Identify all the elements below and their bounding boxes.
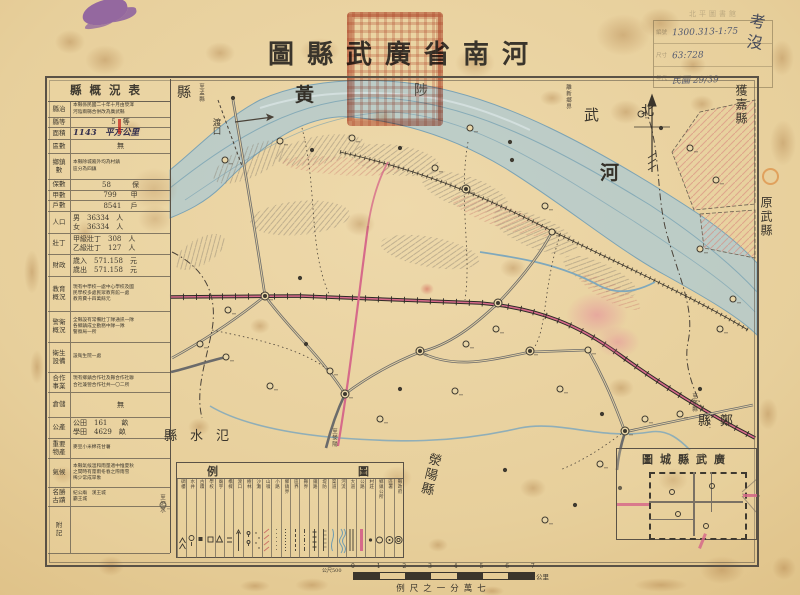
legend-item-label: 縣政府 bbox=[397, 479, 402, 523]
stat-row-value: 本縣係民國二十年十月由滎澤河陰兩縣合併改為廣武縣 bbox=[71, 102, 170, 117]
stat-row-label: 氣候 bbox=[48, 459, 71, 487]
stat-row: 重要 物產麥豆小米棉花甘薯 bbox=[48, 439, 170, 459]
scanned-map-sheet: 圖縣武廣省南河 北平圖書館 編號 1300.313-1:75 尺寸 63:728… bbox=[0, 0, 800, 595]
stat-row-label: 教育 概況 bbox=[48, 277, 71, 311]
scale-bar-segments bbox=[353, 572, 535, 580]
legend-item-label: 小路 bbox=[274, 479, 279, 523]
legend-item-tri: 廟宇 bbox=[215, 479, 224, 558]
legend-item-symbol bbox=[385, 523, 394, 556]
legend-item-tk: 堤防 bbox=[318, 479, 327, 558]
stat-row-label: 重要 物產 bbox=[48, 439, 71, 458]
scale-segment bbox=[431, 573, 457, 579]
inset-title: 圖城縣武廣 bbox=[627, 451, 747, 467]
stat-row-label: 附 記 bbox=[48, 507, 71, 553]
scale-segment bbox=[380, 573, 406, 579]
legend-item-label: 山嶺 bbox=[265, 479, 270, 523]
legend-item-symbol bbox=[206, 523, 215, 556]
county-town-inset-map: 圖城縣武廣 bbox=[616, 448, 757, 540]
legend-item-symbol bbox=[338, 523, 347, 556]
stat-row-label: 壯丁 bbox=[48, 234, 71, 254]
legend-item-label: 大道 bbox=[349, 479, 354, 523]
legend-item-symbol bbox=[234, 523, 243, 556]
stat-row: 區數無 bbox=[48, 140, 170, 154]
highway-west bbox=[617, 503, 649, 506]
route-note-tomeng: 至孟縣 bbox=[197, 83, 205, 103]
scale-tick: 5 bbox=[480, 563, 484, 570]
highway-east bbox=[743, 494, 757, 497]
stat-row-value: 設衛生院一處 bbox=[71, 343, 170, 372]
scale-tick: 2 bbox=[402, 563, 406, 570]
legend-item-tr: 樹林 bbox=[243, 479, 252, 558]
table-header: 縣概況表 bbox=[48, 79, 170, 102]
ferry-label: 渡口 bbox=[210, 118, 222, 135]
stat-row-value: 無 bbox=[71, 393, 170, 417]
neighbor-yuanwu-label: 原武縣 bbox=[758, 196, 775, 238]
scale-segment bbox=[354, 573, 380, 579]
legend-item-symbol bbox=[300, 523, 309, 556]
neighbor-zheng-label: 縣鄭 bbox=[698, 410, 742, 429]
stat-row: 附 記 bbox=[48, 507, 170, 554]
stat-row: 縣治本縣係民國二十年十月由滎澤河陰兩縣合併改為廣武縣 bbox=[48, 102, 170, 118]
legend-item-label: 古蹟 bbox=[199, 479, 204, 523]
legend-item-label: 渠道 bbox=[331, 479, 336, 523]
legend-item-ds: 區界 bbox=[290, 479, 299, 558]
town-landmark bbox=[709, 483, 715, 489]
stat-row: 保數58 保 bbox=[48, 180, 170, 191]
legend-item-d: 村莊 bbox=[365, 479, 374, 558]
legend-item-ar: 渡口 bbox=[233, 479, 242, 558]
stat-row-value: 甲級壯丁 308 人乙級壯丁 127 人 bbox=[71, 234, 170, 254]
stat-row-label: 保數 bbox=[48, 180, 71, 190]
route-note-tozheng: 至鄭縣 bbox=[690, 393, 698, 413]
legend-item-hr: 山嶺 bbox=[262, 479, 271, 558]
town-landmark bbox=[669, 489, 675, 495]
yellow-river-label-huang: 黃 bbox=[295, 80, 314, 107]
legend-item-symbol bbox=[262, 523, 271, 556]
legend-item-pk: 公路 bbox=[356, 479, 365, 558]
legend-item-symbol bbox=[328, 523, 337, 556]
legend-item-wl: 水井 bbox=[186, 479, 195, 558]
city-street bbox=[693, 472, 695, 536]
stat-row: 教育 概況現有中學校一處中心學校及國民學校多處民眾教育館一處教育費十四萬餘元 bbox=[48, 277, 170, 312]
legend-item-symbol bbox=[357, 523, 366, 556]
legend-item-symbol bbox=[253, 523, 262, 556]
stat-row-label: 縣等 bbox=[48, 118, 71, 127]
legend-item-symbol bbox=[319, 523, 328, 556]
scale-tick: 3 bbox=[428, 563, 432, 570]
legend-item-label: 堤防 bbox=[321, 479, 326, 523]
neighbor-huojia-label: 獲嘉縣 bbox=[733, 84, 750, 126]
neighbor-wuzhi-char2: 陟 bbox=[414, 80, 430, 100]
legend-title: 例 圖 bbox=[177, 463, 403, 479]
stat-row-label: 甲數 bbox=[48, 191, 71, 200]
map-legend: 例 圖 縣政府區署鄉鎮公所村莊公路大道河流渠道堤防鐵路縣界區界鄉鎮界小路山嶺沙灘… bbox=[176, 462, 404, 558]
stat-row-value: 5 等 bbox=[71, 118, 170, 127]
scale-tick: 7 bbox=[531, 563, 535, 570]
stat-row-label: 衛生 設備 bbox=[48, 343, 71, 372]
stat-row: 警衛 概況全縣設有常備壯丁隊通訊一隊各鄉鎮成立勤務中隊一隊警察局一所 bbox=[48, 312, 170, 343]
legend-item-label: 橋樑 bbox=[227, 479, 232, 523]
legend-item-symbol bbox=[272, 523, 281, 556]
legend-item-symbol bbox=[281, 523, 290, 556]
legend-item-label: 公路 bbox=[359, 479, 364, 523]
scale-segment bbox=[483, 573, 509, 579]
stat-row-value: 現有鄉鎮合作社及縣合作社聯合社兼營合作社共一〇二所 bbox=[71, 373, 170, 392]
legend-item-c2: 縣政府 bbox=[394, 479, 403, 558]
stat-row-value: 無 bbox=[71, 140, 170, 153]
scale-right-label: 公里 bbox=[536, 571, 549, 581]
stat-row: 面積1143 平方公里 bbox=[48, 128, 170, 140]
town-landmark bbox=[675, 511, 681, 517]
legend-item-c0: 鄉鎮公所 bbox=[375, 479, 384, 558]
stat-row: 名勝 古蹟紀公廟 漢王城霸王城 bbox=[48, 488, 170, 507]
stat-row-label: 戶數 bbox=[48, 201, 71, 211]
yellow-river-label-he: 河 bbox=[600, 158, 619, 185]
scale-segment bbox=[508, 573, 534, 579]
legend-item-pt: 小路 bbox=[271, 479, 280, 558]
legend-item-label: 渡口 bbox=[236, 479, 241, 523]
legend-item-symbol bbox=[196, 523, 205, 556]
scale-caption: 例尺之一分萬七 bbox=[356, 582, 531, 594]
city-street bbox=[649, 501, 743, 503]
legend-item-symbol bbox=[366, 523, 375, 556]
stat-row: 衛生 設備設衛生院一處 bbox=[48, 343, 170, 373]
route-note-xinxiang: 離新鄉界 bbox=[564, 84, 572, 110]
legend-item-symbol bbox=[225, 523, 234, 556]
legend-item-label: 縣界 bbox=[302, 479, 307, 523]
catalog-row-label: 尺寸 bbox=[654, 51, 672, 59]
stat-row: 財政歲入 571.158 元歲出 571.158 元 bbox=[48, 255, 170, 277]
stat-row-label: 公產 bbox=[48, 418, 71, 438]
stat-row-label: 面積 bbox=[48, 128, 71, 139]
stat-row: 壯丁甲級壯丁 308 人乙級壯丁 127 人 bbox=[48, 234, 170, 255]
stat-row-value: 現有中學校一處中心學校及國民學校多處民眾教育館一處教育費十四萬餘元 bbox=[71, 277, 170, 311]
legend-item-mt: 碉樓 bbox=[177, 479, 186, 558]
stat-row: 合作 事業現有鄉鎮合作社及縣合作社聯合社兼營合作社共一〇二所 bbox=[48, 373, 170, 393]
legend-title-char-li: 例 bbox=[207, 463, 218, 479]
legend-item-label: 沙灘 bbox=[255, 479, 260, 523]
stat-row-value: 麥豆小米棉花甘薯 bbox=[71, 439, 170, 458]
scale-bar: 公尺500 公里 01234567 例尺之一分萬七 bbox=[320, 563, 565, 595]
scale-tick: 4 bbox=[454, 563, 458, 570]
stat-row-value: 8541 戶 bbox=[71, 201, 170, 211]
legend-item-label: 河流 bbox=[340, 479, 345, 523]
stat-row-label: 鄉鎮 數 bbox=[48, 154, 71, 179]
neighbor-wuzhi-char3: 縣 bbox=[177, 82, 193, 102]
stat-row-label: 合作 事業 bbox=[48, 373, 71, 392]
neighbor-fanshui-label: 縣水氾 bbox=[164, 425, 242, 444]
stat-row-label: 名勝 古蹟 bbox=[48, 488, 71, 506]
stat-row-value: 紀公廟 漢王城霸王城 bbox=[71, 488, 170, 506]
legend-item-label: 樹林 bbox=[246, 479, 251, 523]
stat-row-label: 人口 bbox=[48, 212, 71, 233]
stat-row-value: 公田 161 畝學田 4629 畝 bbox=[71, 418, 170, 438]
stat-row: 氣候本縣氣候溫和雨量適中惟夏秋之間時有霪雨冬春之際雨雪稀少常成旱象 bbox=[48, 459, 170, 488]
legend-item-label: 水井 bbox=[189, 479, 194, 523]
town-landmark bbox=[703, 523, 709, 529]
legend-item-sq: 學校 bbox=[205, 479, 214, 558]
legend-item-label: 村莊 bbox=[368, 479, 373, 523]
legend-item-label: 鄉鎮界 bbox=[283, 479, 288, 523]
stat-row-label: 倉儲 bbox=[48, 393, 71, 417]
scale-tick: 0 bbox=[351, 563, 355, 570]
legend-item-cd: 區署 bbox=[384, 479, 393, 558]
stat-row-value: 58 保 bbox=[71, 180, 170, 190]
scale-tick: 1 bbox=[377, 563, 381, 570]
county-statistics-table: 縣概況表 縣治本縣係民國二十年十月由滎澤河陰兩縣合併改為廣武縣縣等5 等面積11… bbox=[48, 79, 171, 553]
legend-item-symbol bbox=[310, 523, 319, 556]
stat-row-value: 799 甲 bbox=[71, 191, 170, 200]
stat-row: 縣等5 等 bbox=[48, 118, 170, 128]
legend-item-eq: 橋樑 bbox=[224, 479, 233, 558]
scale-segment bbox=[405, 573, 431, 579]
legend-item-fl: 古蹟 bbox=[196, 479, 205, 558]
stat-row-label: 區數 bbox=[48, 140, 71, 153]
stat-row: 甲數799 甲 bbox=[48, 191, 170, 201]
stat-row: 倉儲無 bbox=[48, 393, 170, 418]
legend-item-symbol bbox=[394, 523, 403, 556]
stat-row-value: 歲入 571.158 元歲出 571.158 元 bbox=[71, 255, 170, 276]
legend-item-symbol bbox=[244, 523, 253, 556]
scale-left-label: 公尺500 bbox=[322, 567, 342, 574]
legend-item-symbol bbox=[291, 523, 300, 556]
stat-row: 公產公田 161 畝學田 4629 畝 bbox=[48, 418, 170, 439]
stat-row-label: 警衛 概況 bbox=[48, 312, 71, 342]
stat-row-label: 財政 bbox=[48, 255, 71, 276]
legend-item-label: 學校 bbox=[208, 479, 213, 523]
scale-tick: 6 bbox=[505, 563, 509, 570]
legend-item-gr: 沙灘 bbox=[252, 479, 261, 558]
legend-item-symbol bbox=[215, 523, 224, 556]
legend-item-symbol bbox=[178, 523, 187, 556]
stat-row-value: 本縣氣候溫和雨量適中惟夏秋之間時有霪雨冬春之際雨雪稀少常成旱象 bbox=[71, 459, 170, 487]
legend-item-bl: 渠道 bbox=[328, 479, 337, 558]
neighbor-wuzhi-char1: 武 bbox=[584, 104, 601, 125]
legend-item-label: 碉樓 bbox=[180, 479, 185, 523]
legend-item-xx: 鐵路 bbox=[309, 479, 318, 558]
stat-row-value: 全縣設有常備壯丁隊通訊一隊各鄉鎮成立勤務中隊一隊警察局一所 bbox=[71, 312, 170, 342]
orange-ring-stain bbox=[762, 168, 779, 185]
legend-item-symbol bbox=[347, 523, 356, 556]
north-label: 北 bbox=[641, 100, 656, 119]
legend-item-symbol bbox=[375, 523, 384, 556]
legend-item-label: 區界 bbox=[293, 479, 298, 523]
scale-segment bbox=[457, 573, 483, 579]
legend-item-symbol bbox=[187, 523, 196, 556]
catalog-row-label: 編號 bbox=[654, 28, 672, 36]
legend-title-char-tu: 圖 bbox=[358, 463, 369, 479]
stat-row-value: 1143 平方公里 bbox=[71, 128, 170, 139]
legend-item-dd: 縣界 bbox=[299, 479, 308, 558]
stat-row-value bbox=[71, 507, 170, 553]
legend-item-dt: 鄉鎮界 bbox=[281, 479, 290, 558]
legend-item-label: 鄉鎮公所 bbox=[378, 479, 383, 523]
stat-row: 人口男 36334 人女 36334 人 bbox=[48, 212, 170, 234]
stat-row: 戶數8541 戶 bbox=[48, 201, 170, 212]
city-street bbox=[649, 519, 695, 520]
red-check-mark bbox=[118, 119, 121, 134]
route-note-toxingyang: 至滎陽 bbox=[330, 428, 338, 448]
city-street bbox=[711, 472, 712, 512]
legend-item-wv: 河流 bbox=[337, 479, 346, 558]
legend-item-label: 區署 bbox=[387, 479, 392, 523]
stat-row-value: 男 36334 人女 36334 人 bbox=[71, 212, 170, 233]
stat-row: 鄉鎮 數本縣除城廂外均為村鎮區分為四鎮 bbox=[48, 154, 170, 180]
legend-item-label: 鐵路 bbox=[312, 479, 317, 523]
legend-item-label: 廟宇 bbox=[218, 479, 223, 523]
city-wall bbox=[649, 472, 747, 540]
route-note-tosishui: 至汜水 bbox=[158, 494, 166, 514]
legend-item-db: 大道 bbox=[346, 479, 355, 558]
stat-row-label: 縣治 bbox=[48, 102, 71, 117]
stat-row-value: 本縣除城廂外均為村鎮區分為四鎮 bbox=[71, 154, 170, 179]
